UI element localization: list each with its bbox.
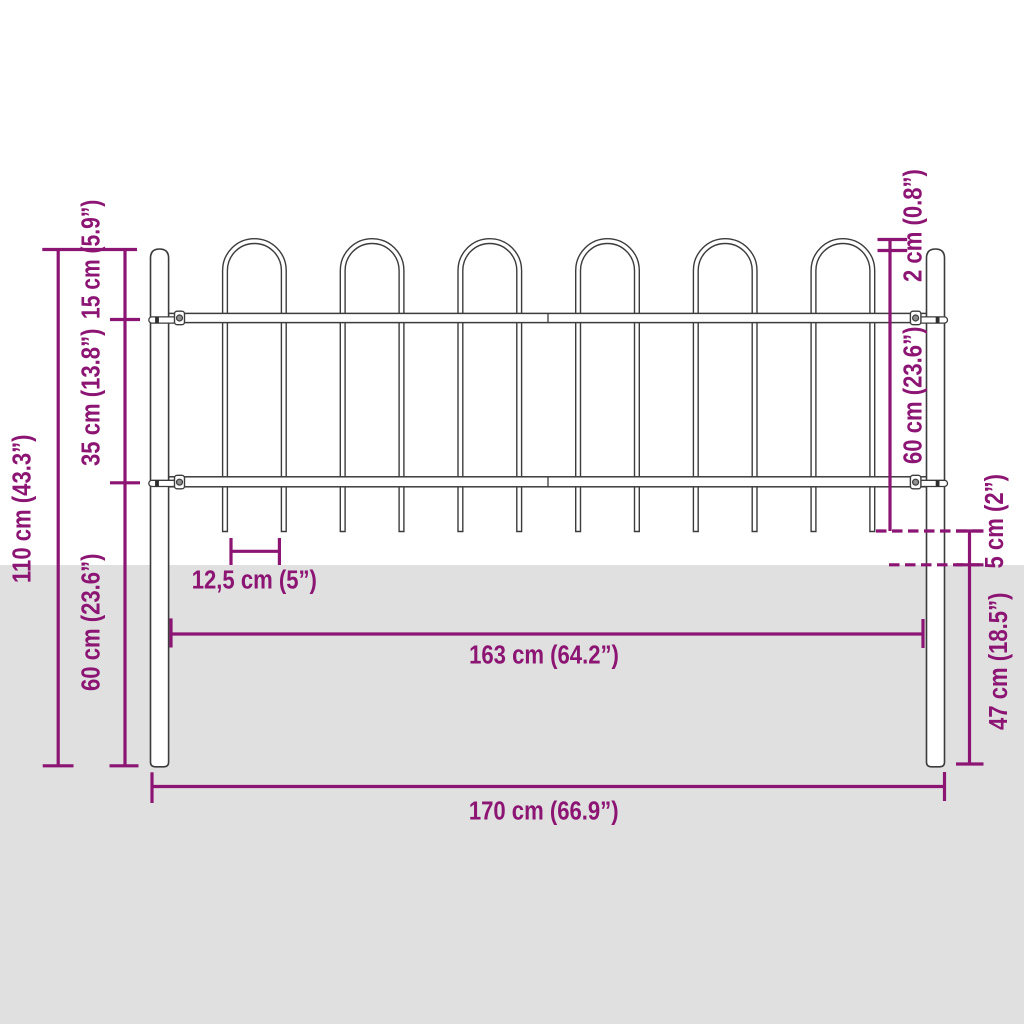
svg-text:5 cm (2”): 5 cm (2”) [980, 474, 1009, 568]
svg-text:60 cm (23.6”): 60 cm (23.6”) [899, 327, 928, 464]
svg-text:15 cm (5.9”): 15 cm (5.9”) [78, 200, 107, 319]
svg-text:60 cm (23.6”): 60 cm (23.6”) [77, 554, 106, 691]
svg-text:12,5 cm (5”): 12,5 cm (5”) [192, 566, 317, 595]
svg-text:2 cm (0.8”): 2 cm (0.8”) [899, 169, 928, 282]
svg-text:35 cm (13.8”): 35 cm (13.8”) [77, 329, 106, 466]
svg-text:47 cm (18.5”): 47 cm (18.5”) [984, 593, 1013, 730]
svg-text:110 cm (43.3”): 110 cm (43.3”) [8, 434, 37, 583]
svg-text:170 cm (66.9”): 170 cm (66.9”) [469, 797, 619, 826]
svg-text:163 cm (64.2”): 163 cm (64.2”) [469, 641, 619, 670]
